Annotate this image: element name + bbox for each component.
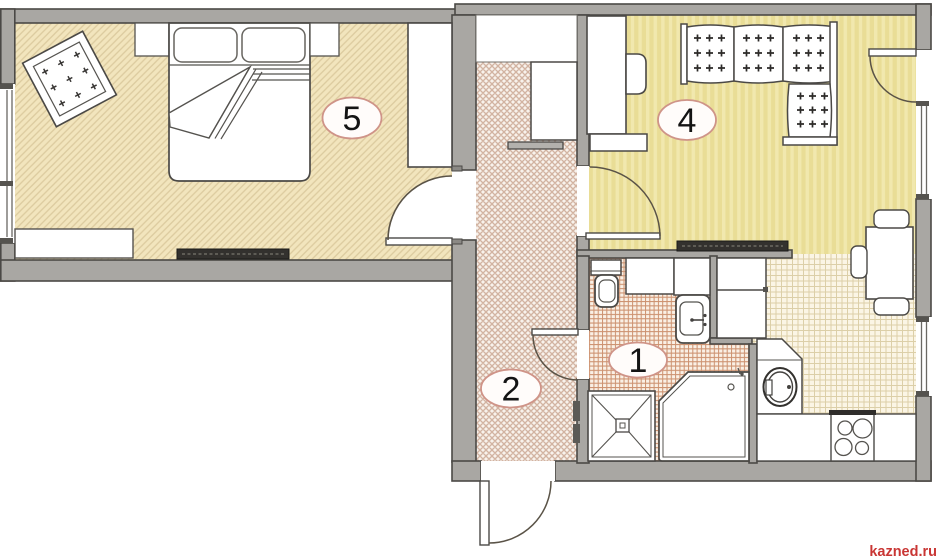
svg-text:kazned.ru: kazned.ru bbox=[869, 544, 937, 557]
svg-text:5: 5 bbox=[343, 100, 362, 138]
svg-text:4: 4 bbox=[678, 102, 697, 140]
svg-text:1: 1 bbox=[629, 342, 648, 380]
svg-text:2: 2 bbox=[502, 371, 521, 409]
